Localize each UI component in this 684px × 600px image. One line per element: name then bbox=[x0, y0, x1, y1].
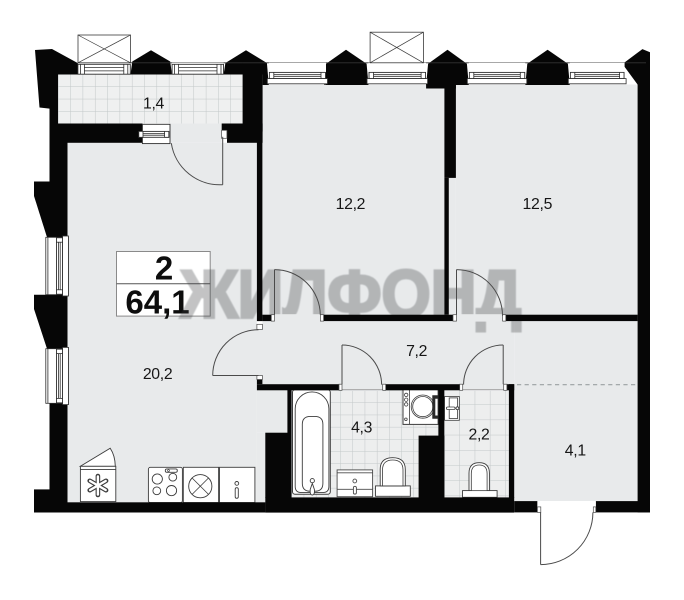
svg-text:12,2: 12,2 bbox=[336, 196, 366, 213]
svg-text:20,2: 20,2 bbox=[143, 366, 173, 383]
svg-text:7,2: 7,2 bbox=[406, 343, 427, 360]
svg-text:4,3: 4,3 bbox=[351, 420, 373, 437]
svg-text:12,5: 12,5 bbox=[523, 196, 553, 213]
svg-text:1,4: 1,4 bbox=[143, 95, 165, 112]
svg-text:2: 2 bbox=[155, 250, 173, 287]
svg-text:2,2: 2,2 bbox=[468, 427, 489, 444]
svg-text:4,1: 4,1 bbox=[565, 442, 587, 459]
